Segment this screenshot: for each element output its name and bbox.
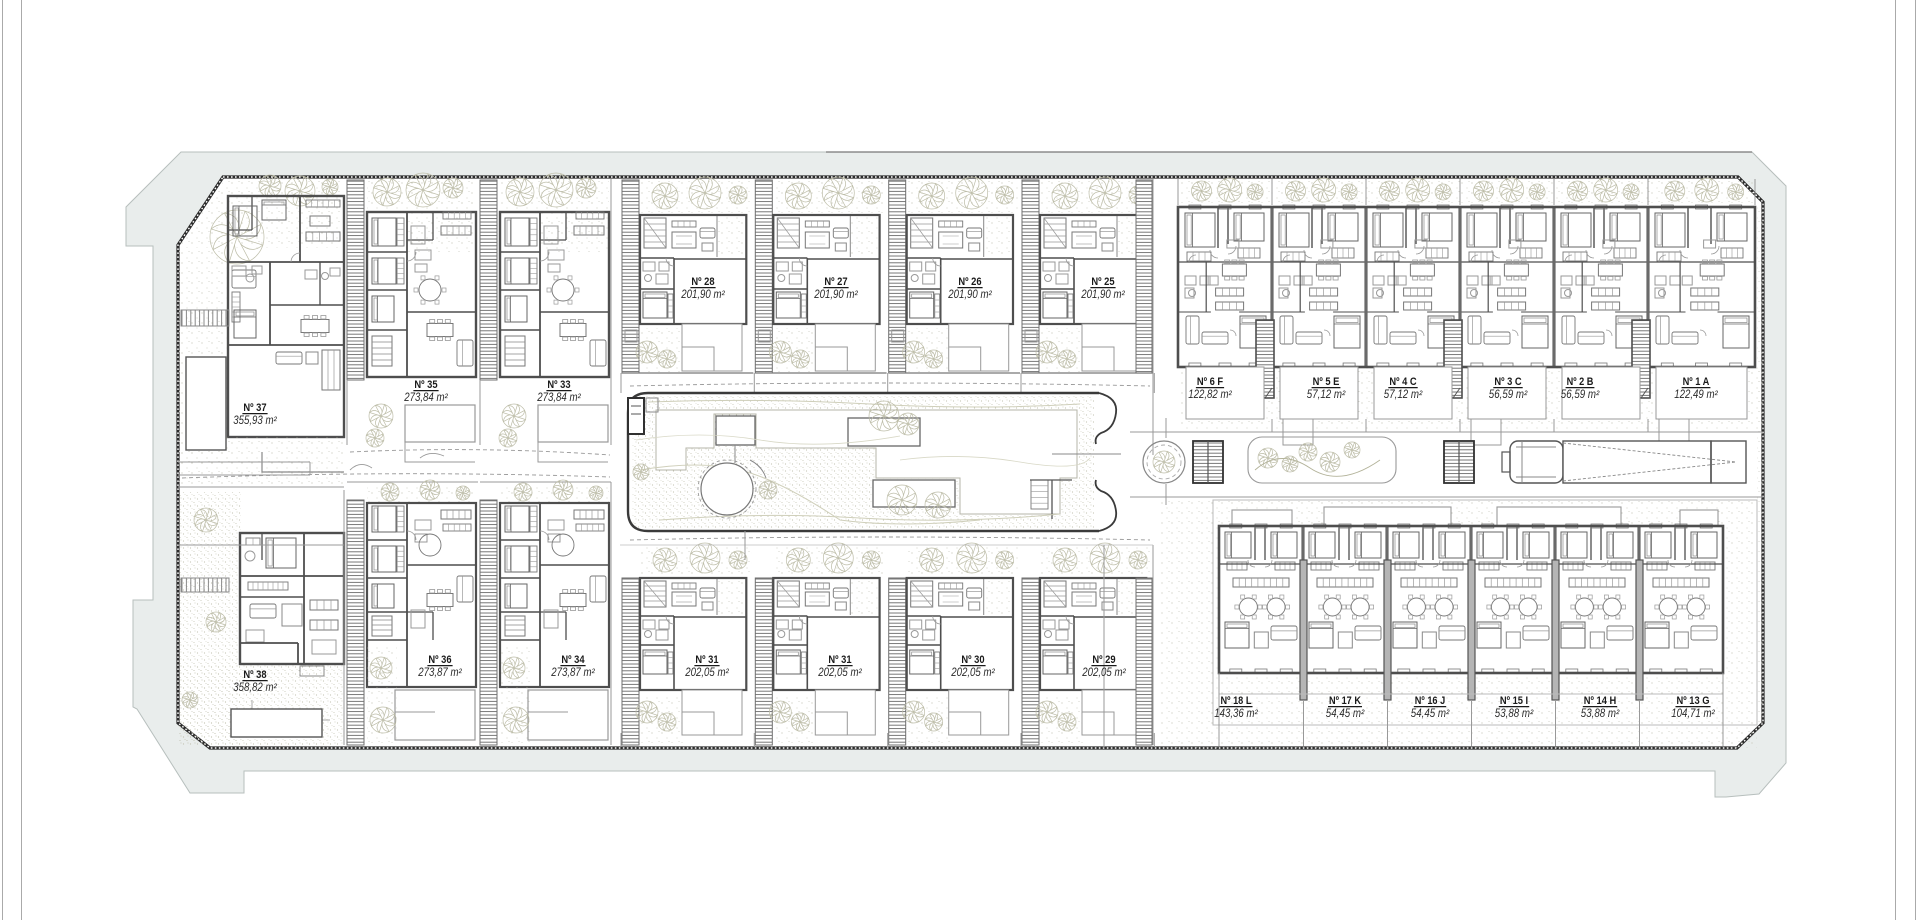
svg-text:201,90 m²: 201,90 m² — [1080, 289, 1125, 301]
svg-text:Nº 36: Nº 36 — [428, 654, 451, 666]
svg-text:Nº 37: Nº 37 — [243, 402, 266, 414]
svg-text:202,05 m²: 202,05 m² — [684, 667, 729, 679]
svg-text:273,84 m²: 273,84 m² — [536, 392, 581, 404]
svg-text:202,05 m²: 202,05 m² — [950, 667, 995, 679]
svg-text:53,88 m²: 53,88 m² — [1495, 708, 1534, 720]
svg-text:Nº 35: Nº 35 — [414, 379, 437, 391]
svg-text:143,36 m²: 143,36 m² — [1214, 708, 1258, 720]
svg-text:Nº 27: Nº 27 — [824, 276, 847, 288]
svg-text:122,49 m²: 122,49 m² — [1674, 389, 1718, 401]
svg-text:202,05 m²: 202,05 m² — [1081, 667, 1126, 679]
svg-text:Nº 16 J: Nº 16 J — [1415, 695, 1445, 707]
svg-text:Nº 29: Nº 29 — [1092, 654, 1115, 666]
svg-text:Nº 5 E: Nº 5 E — [1313, 376, 1340, 388]
svg-text:Nº 31: Nº 31 — [828, 654, 851, 666]
svg-text:273,84 m²: 273,84 m² — [403, 392, 448, 404]
svg-text:202,05 m²: 202,05 m² — [817, 667, 862, 679]
svg-text:104,71 m²: 104,71 m² — [1671, 708, 1715, 720]
svg-text:53,88 m²: 53,88 m² — [1581, 708, 1620, 720]
svg-text:273,87 m²: 273,87 m² — [417, 667, 462, 679]
svg-text:Nº 26: Nº 26 — [958, 276, 981, 288]
svg-text:201,90 m²: 201,90 m² — [680, 289, 725, 301]
svg-text:Nº 38: Nº 38 — [243, 669, 266, 681]
svg-text:Nº 33: Nº 33 — [547, 379, 570, 391]
svg-text:273,87 m²: 273,87 m² — [550, 667, 595, 679]
svg-text:Nº 2 B: Nº 2 B — [1567, 376, 1594, 388]
svg-text:201,90 m²: 201,90 m² — [947, 289, 992, 301]
svg-text:201,90 m²: 201,90 m² — [813, 289, 858, 301]
svg-text:Nº 14 H: Nº 14 H — [1584, 695, 1617, 707]
svg-text:Nº 3 C: Nº 3 C — [1494, 376, 1521, 388]
svg-text:56,59 m²: 56,59 m² — [1561, 389, 1600, 401]
svg-text:57,12 m²: 57,12 m² — [1307, 389, 1346, 401]
svg-text:54,45 m²: 54,45 m² — [1411, 708, 1450, 720]
svg-text:Nº 15 I: Nº 15 I — [1500, 695, 1528, 707]
svg-text:56,59 m²: 56,59 m² — [1489, 389, 1528, 401]
svg-text:Nº 6 F: Nº 6 F — [1197, 376, 1224, 388]
svg-text:57,12 m²: 57,12 m² — [1384, 389, 1423, 401]
svg-text:Nº 4 C: Nº 4 C — [1389, 376, 1416, 388]
svg-text:Nº 17 K: Nº 17 K — [1329, 695, 1361, 707]
svg-text:Nº 25: Nº 25 — [1091, 276, 1114, 288]
svg-text:122,82 m²: 122,82 m² — [1188, 389, 1232, 401]
svg-text:358,82 m²: 358,82 m² — [233, 682, 277, 694]
svg-text:Nº 1 A: Nº 1 A — [1683, 376, 1710, 388]
svg-text:Nº 18 L: Nº 18 L — [1221, 695, 1252, 707]
svg-text:Nº 34: Nº 34 — [561, 654, 585, 666]
svg-text:Nº 30: Nº 30 — [961, 654, 984, 666]
svg-text:Nº 31: Nº 31 — [695, 654, 718, 666]
svg-text:54,45 m²: 54,45 m² — [1326, 708, 1365, 720]
svg-text:355,93 m²: 355,93 m² — [233, 415, 277, 427]
svg-text:Nº 28: Nº 28 — [691, 276, 714, 288]
svg-text:Nº 13 G: Nº 13 G — [1677, 695, 1710, 707]
